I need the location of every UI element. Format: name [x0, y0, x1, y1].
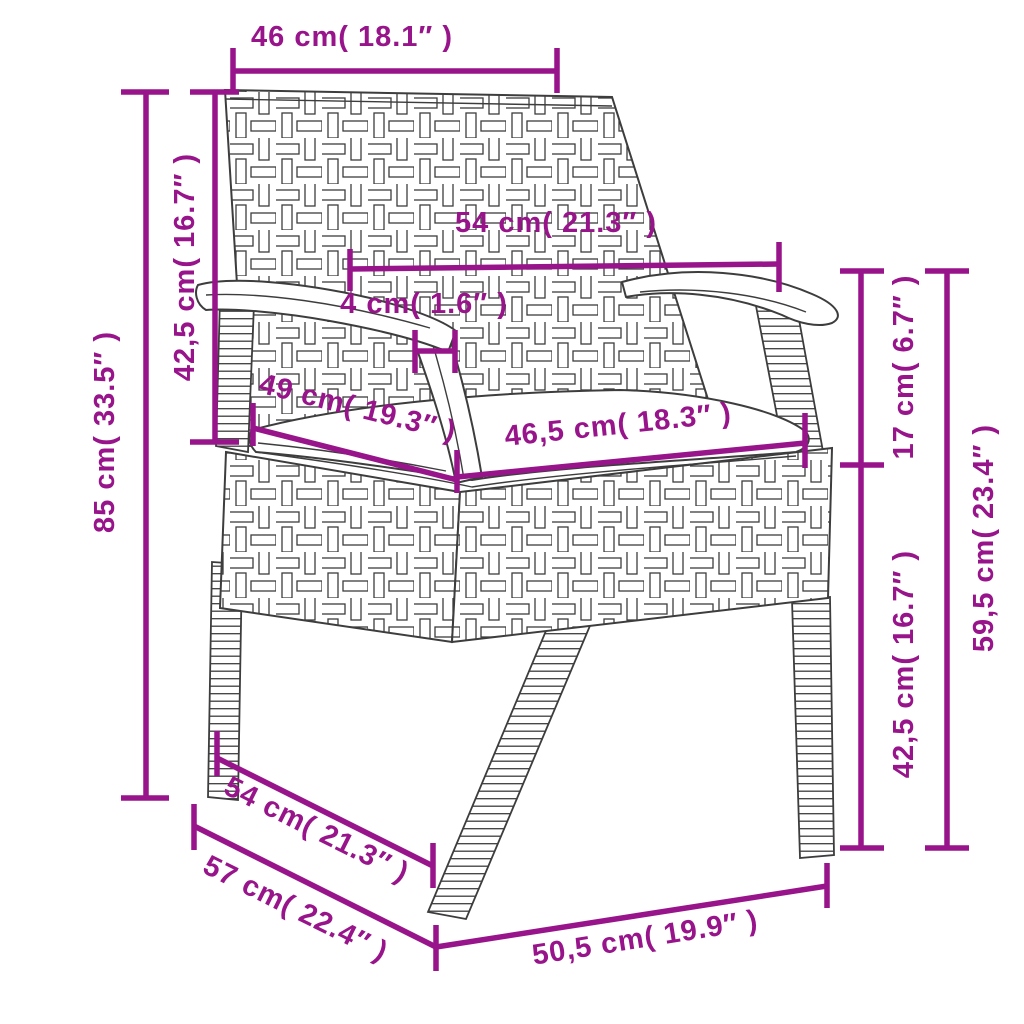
dimension-label: 85 cm( 33.5″ ): [89, 331, 121, 533]
dimension-label: 46 cm( 18.1″ ): [251, 21, 453, 53]
seat-apron-left-face: [220, 452, 460, 642]
dimension-label: 42,5 cm( 16.7″ ): [169, 153, 201, 381]
front-left-leg: [428, 621, 592, 919]
chair-dimension-svg: 46 cm( 18.1″ ) 42,5 cm( 16.7″ ) 85 cm( 3…: [0, 0, 1024, 1024]
dim-base-width: 50,5 cm( 19.9″ ): [436, 863, 827, 972]
dim-backrest-width: 46 cm( 18.1″ ): [233, 21, 557, 93]
dimension-label: 17 cm( 6.7″ ): [888, 275, 920, 460]
dim-armrest-height: 59,5 cm( 23.4″ ): [925, 271, 1000, 848]
dimension-label: 42,5 cm( 16.7″ ): [888, 550, 920, 778]
dimension-diagram: 46 cm( 18.1″ ) 42,5 cm( 16.7″ ) 85 cm( 3…: [0, 0, 1024, 1024]
left-arm-support-column: [216, 298, 254, 452]
seat-apron-front-face: [452, 448, 832, 642]
front-right-leg: [792, 597, 834, 858]
dim-total-height: 85 cm( 33.5″ ): [89, 92, 169, 798]
dim-seat-height: 42,5 cm( 16.7″ ): [888, 550, 920, 778]
dim-base-depth-inner: 54 cm( 21.3″ ): [217, 731, 433, 889]
dimension-label: 59,5 cm( 23.4″ ): [968, 424, 1000, 652]
dimension-label: 4 cm( 1.6″ ): [340, 288, 508, 320]
dimension-label: 54 cm( 21.3″ ): [455, 207, 657, 239]
